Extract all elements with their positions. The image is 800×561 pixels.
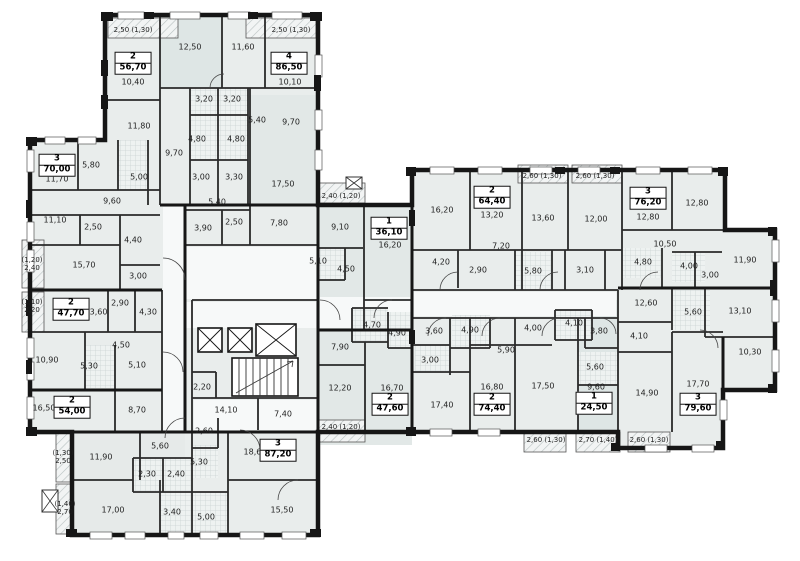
floor-plan-page: 12,5011,6010,4010,1011,809,705,403,203,2… bbox=[0, 0, 800, 561]
staircase bbox=[232, 358, 298, 396]
elevator-shafts bbox=[198, 324, 296, 356]
room-fills bbox=[30, 15, 775, 535]
floor-plan-drawing bbox=[0, 0, 800, 561]
